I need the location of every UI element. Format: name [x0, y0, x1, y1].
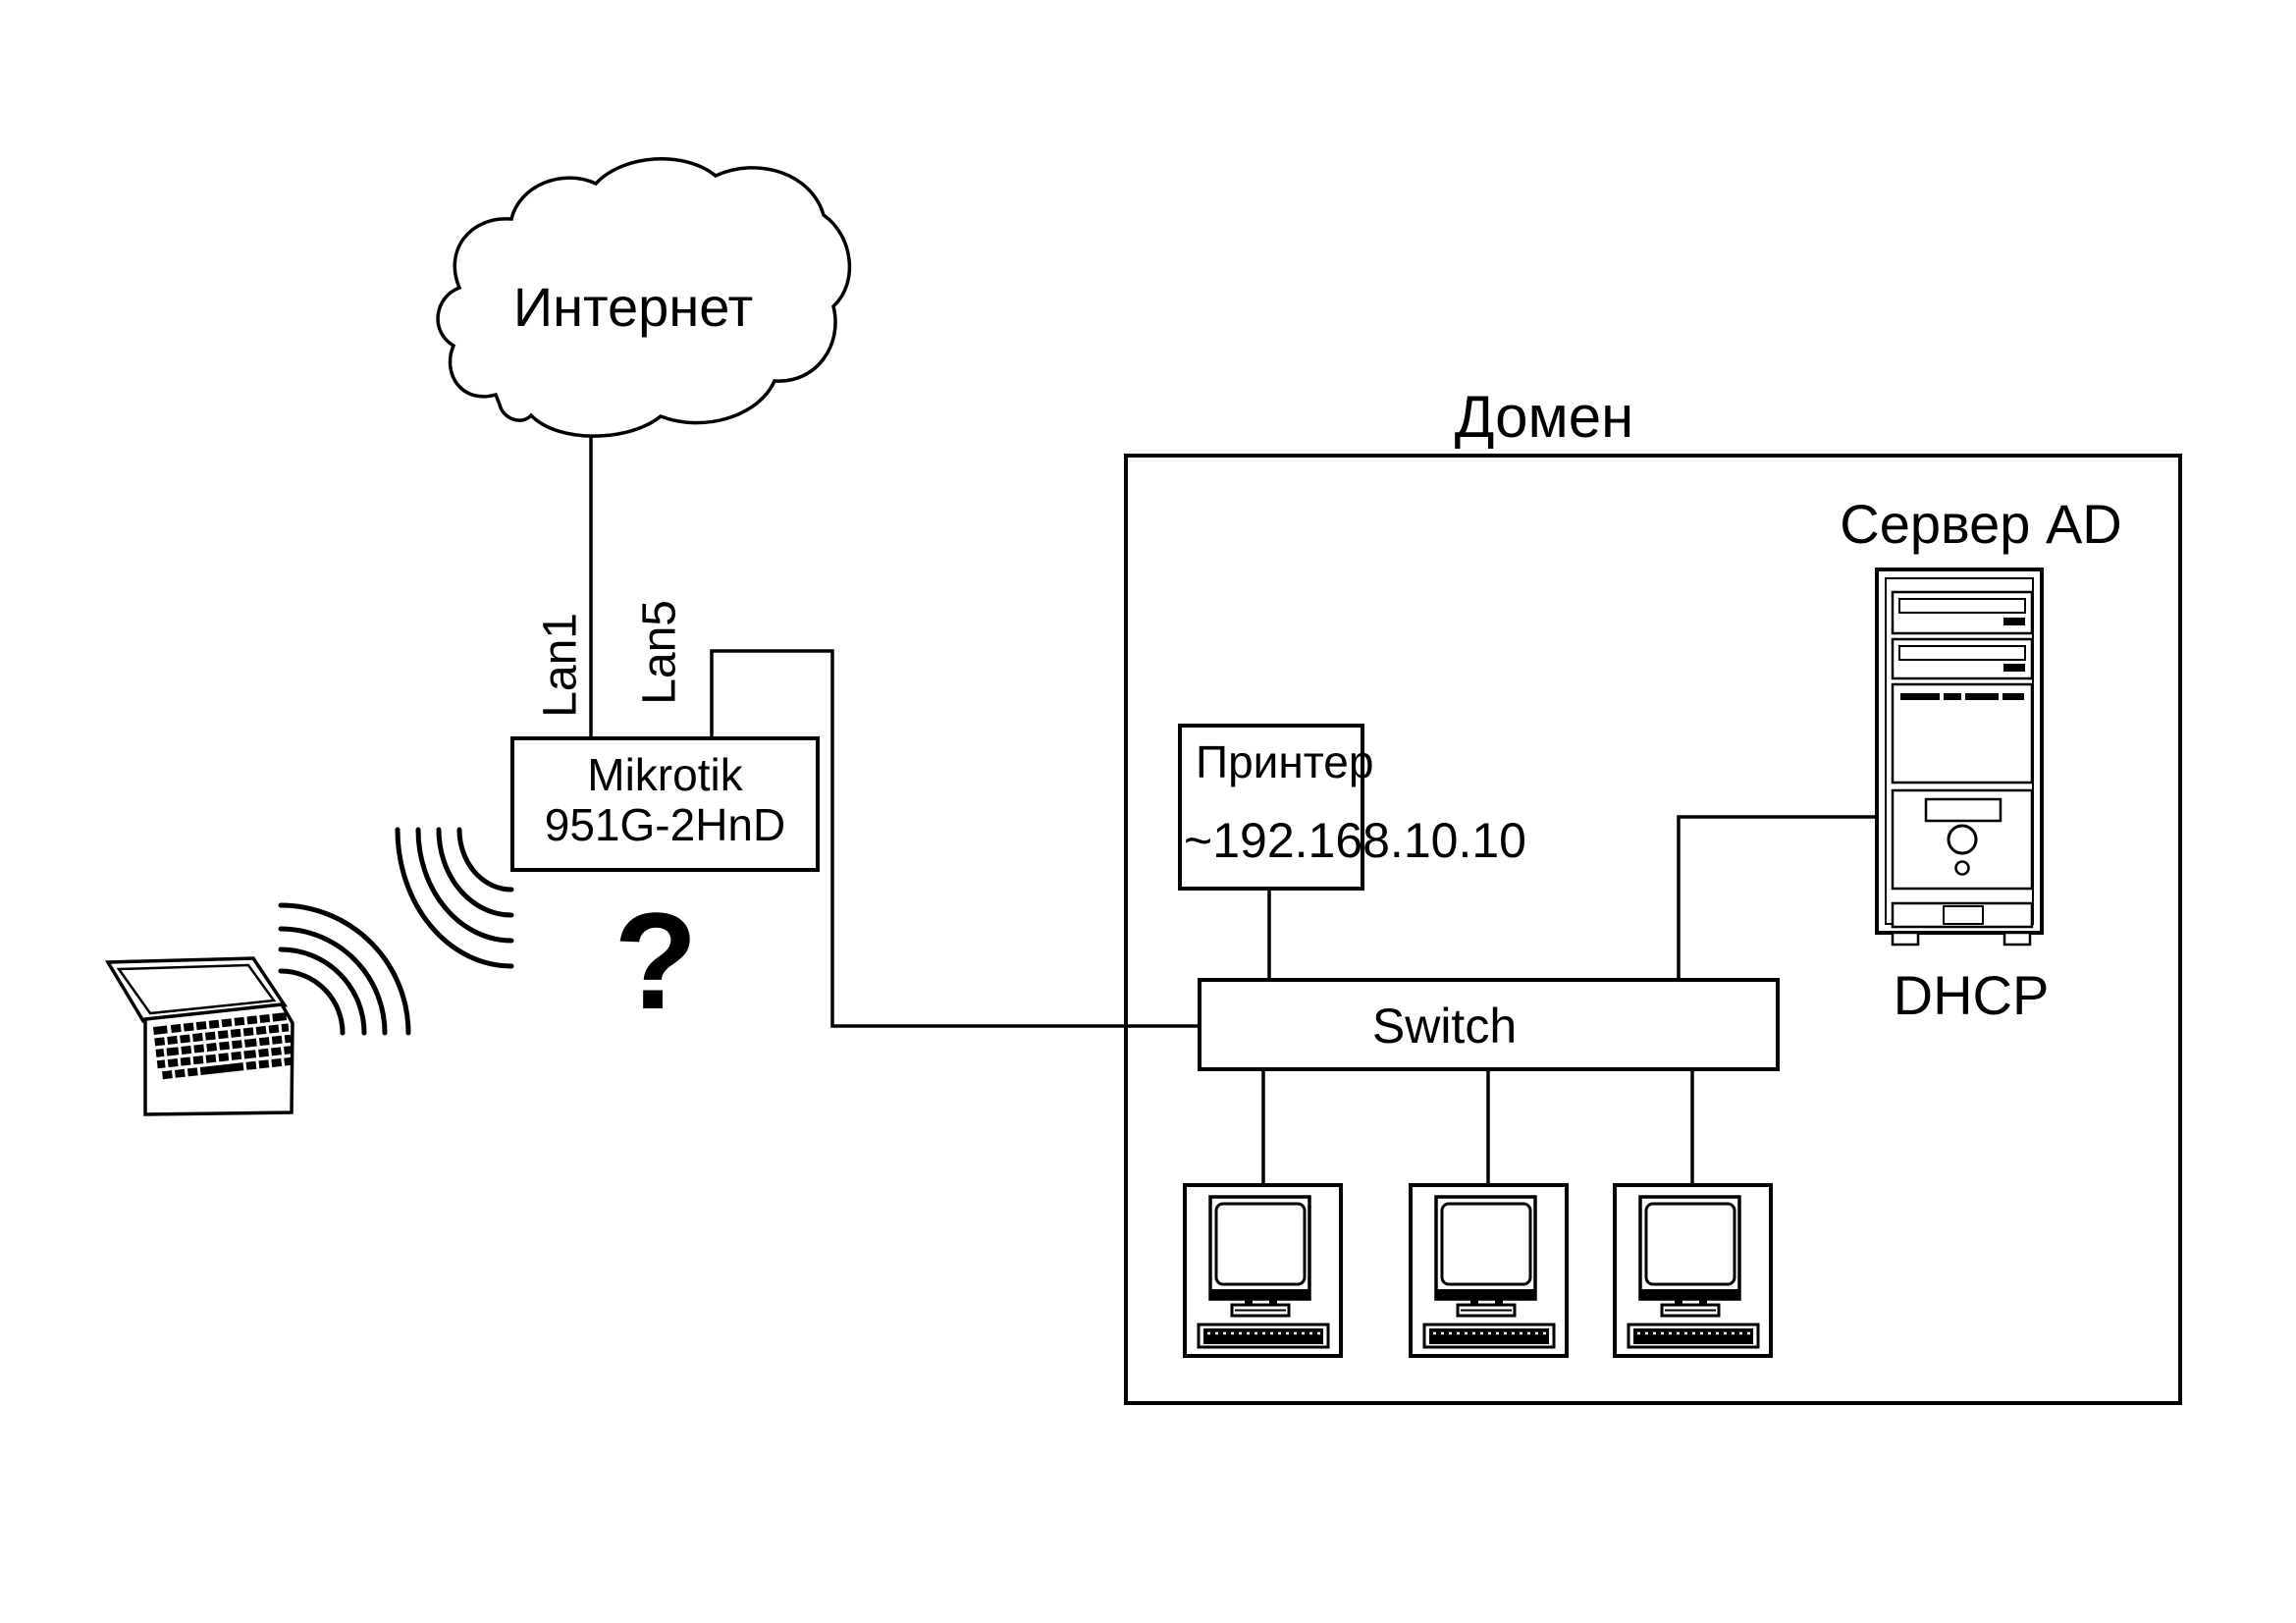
wifi-waves-icon — [281, 905, 408, 1033]
switch-node: Switch — [1198, 978, 1780, 1071]
printer-ip-address: ~192.168.10.10 — [1184, 814, 1526, 868]
domain-title: Домен — [1372, 385, 1716, 450]
switch-label: Switch — [1157, 982, 1732, 1054]
internet-cloud-label: Интернет — [510, 277, 756, 338]
router-port-lan1-label: Lan1 — [536, 606, 588, 724]
network-diagram: Интернет Lan1 Lan5 Mikrotik 951G-2HnD ? … — [0, 0, 2296, 1623]
wireless-question-mark: ? — [587, 886, 724, 1037]
router-port-lan5-label: Lan5 — [635, 593, 687, 711]
router-model-line2: 951G-2HnD — [514, 800, 816, 850]
server-ad-title: Сервер AD — [1834, 494, 2128, 555]
printer-node: Принтер ~192.168.10.10 — [1178, 724, 1364, 891]
router-node: Mikrotik 951G-2HnD — [510, 736, 820, 872]
router-model-line1: Mikrotik — [514, 750, 816, 800]
laptop-icon — [108, 958, 294, 1114]
printer-name: Принтер — [1196, 737, 1373, 787]
server-dhcp-label: DHCP — [1873, 965, 2069, 1026]
wifi-waves-icon — [398, 830, 511, 966]
domain-boundary-box — [1124, 454, 2182, 1405]
